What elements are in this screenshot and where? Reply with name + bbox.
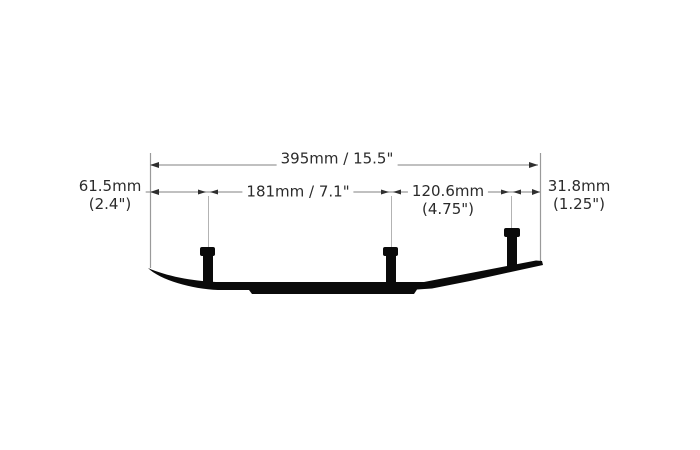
stud-front: [200, 247, 215, 283]
label-left-offset: 61.5mm (2.4"): [75, 177, 146, 213]
label-right-offset-mm: 31.8mm: [548, 177, 611, 195]
arrowhead-centerspan-left: [210, 190, 218, 195]
label-rear-span-inch: (4.75"): [412, 200, 484, 218]
arrowhead-rearspan-left: [393, 190, 401, 195]
label-rear-span-mm: 120.6mm: [412, 182, 484, 200]
label-center-span: 181mm / 7.1": [242, 184, 353, 201]
arrowhead-leftoffset-right: [198, 190, 206, 195]
runner-drawing: [0, 0, 700, 450]
stud-rear: [504, 228, 520, 266]
label-left-offset-inch: (2.4"): [79, 195, 142, 213]
stud-rear-shaft: [507, 234, 517, 266]
label-left-offset-mm: 61.5mm: [79, 177, 142, 195]
arrowhead-centerspan-right: [381, 190, 389, 195]
dimension-diagram: 395mm / 15.5" 181mm / 7.1" 120.6mm (4.75…: [0, 0, 700, 450]
label-right-offset: 31.8mm (1.25"): [544, 177, 615, 213]
stud-middle: [383, 247, 398, 283]
arrowhead-rightoffset-right: [532, 189, 540, 195]
arrowhead-leftoffset-left: [150, 189, 159, 195]
arrowhead-rearspan-right: [501, 190, 509, 195]
label-rear-span: 120.6mm (4.75"): [408, 182, 488, 218]
arrowhead-total-right: [529, 162, 538, 168]
label-total-length: 395mm / 15.5": [277, 151, 398, 168]
arrowhead-total-left: [150, 162, 159, 168]
stud-front-shaft: [203, 252, 213, 283]
stud-middle-shaft: [386, 252, 396, 283]
label-right-offset-inch: (1.25"): [548, 195, 611, 213]
arrowhead-rightoffset-left: [513, 190, 521, 195]
